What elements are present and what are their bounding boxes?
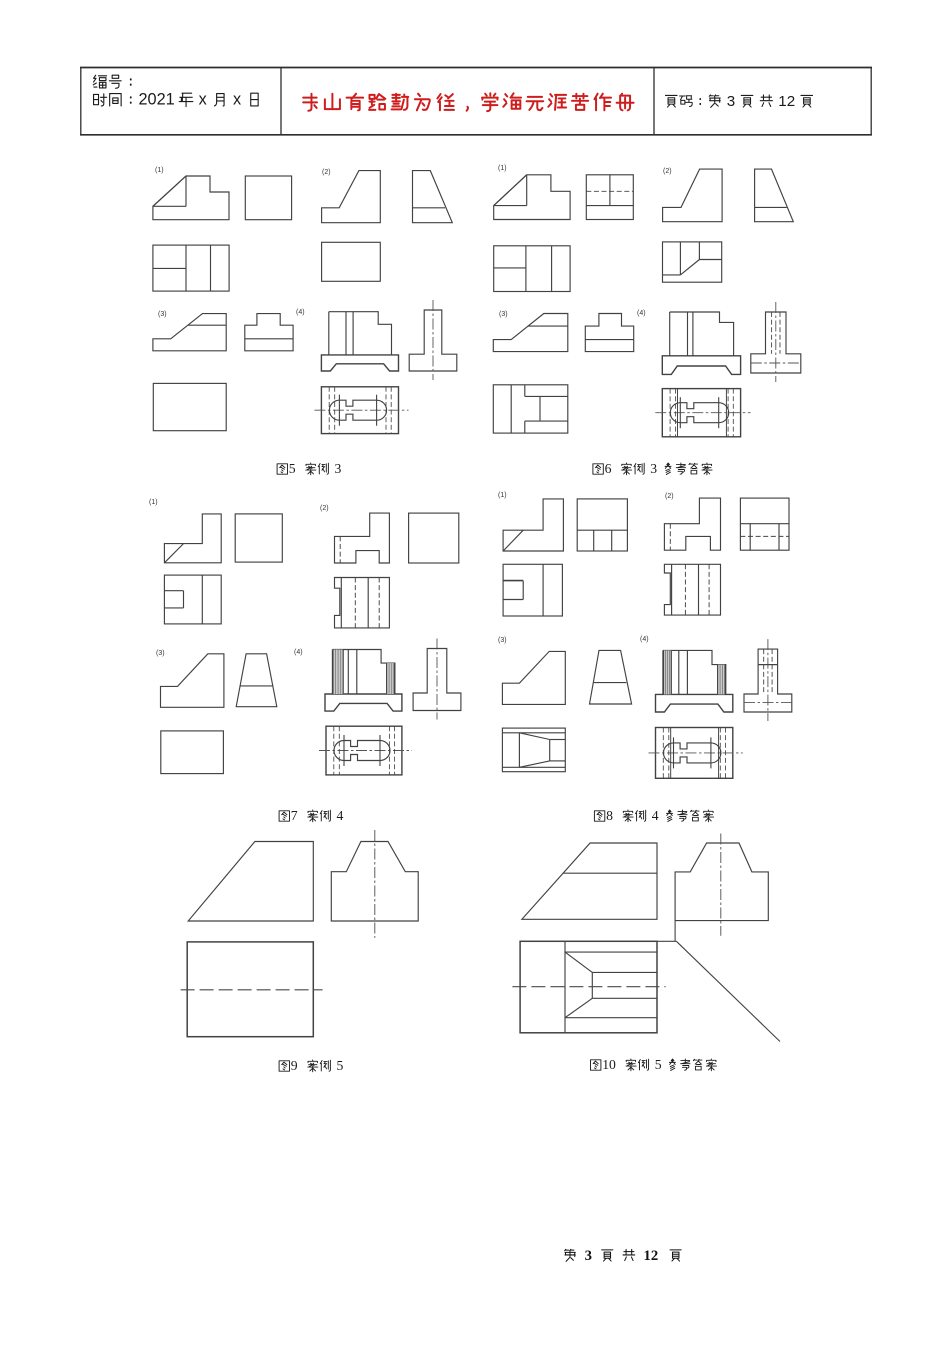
svg-text:4: 4	[652, 808, 659, 823]
svg-text:(3): (3)	[156, 650, 165, 657]
svg-text:12: 12	[644, 1248, 659, 1264]
svg-text:3: 3	[335, 461, 342, 476]
svg-text:(4): (4)	[637, 310, 646, 317]
svg-text:(4): (4)	[296, 309, 305, 316]
svg-text:5: 5	[655, 1057, 662, 1072]
svg-text:3: 3	[727, 93, 735, 110]
svg-text:5: 5	[289, 461, 296, 476]
svg-text:x: x	[233, 91, 241, 109]
svg-text:(1): (1)	[149, 499, 158, 506]
svg-text:(2): (2)	[665, 493, 674, 500]
svg-text:8: 8	[606, 808, 613, 823]
svg-text:7: 7	[291, 808, 298, 823]
svg-text:5: 5	[337, 1058, 344, 1073]
svg-text:2021: 2021	[139, 91, 175, 109]
svg-text:(2): (2)	[322, 169, 331, 176]
svg-text:6: 6	[605, 461, 612, 476]
svg-text:3: 3	[585, 1248, 592, 1264]
svg-text:(1): (1)	[498, 165, 507, 172]
svg-text:12: 12	[778, 93, 795, 110]
svg-text:(3): (3)	[499, 311, 508, 318]
svg-text:x: x	[199, 91, 207, 109]
svg-text:(1): (1)	[155, 167, 164, 174]
svg-text:3: 3	[650, 461, 657, 476]
svg-text:10: 10	[602, 1057, 616, 1072]
svg-text:(4): (4)	[294, 649, 303, 656]
svg-text:(4): (4)	[640, 636, 649, 643]
svg-text:9: 9	[291, 1058, 298, 1073]
svg-text:(2): (2)	[320, 505, 329, 512]
svg-text:4: 4	[337, 808, 344, 823]
svg-text:(3): (3)	[158, 311, 167, 318]
svg-text:(3): (3)	[498, 637, 507, 644]
svg-text:(2): (2)	[663, 168, 672, 175]
svg-text:(1): (1)	[498, 492, 507, 499]
